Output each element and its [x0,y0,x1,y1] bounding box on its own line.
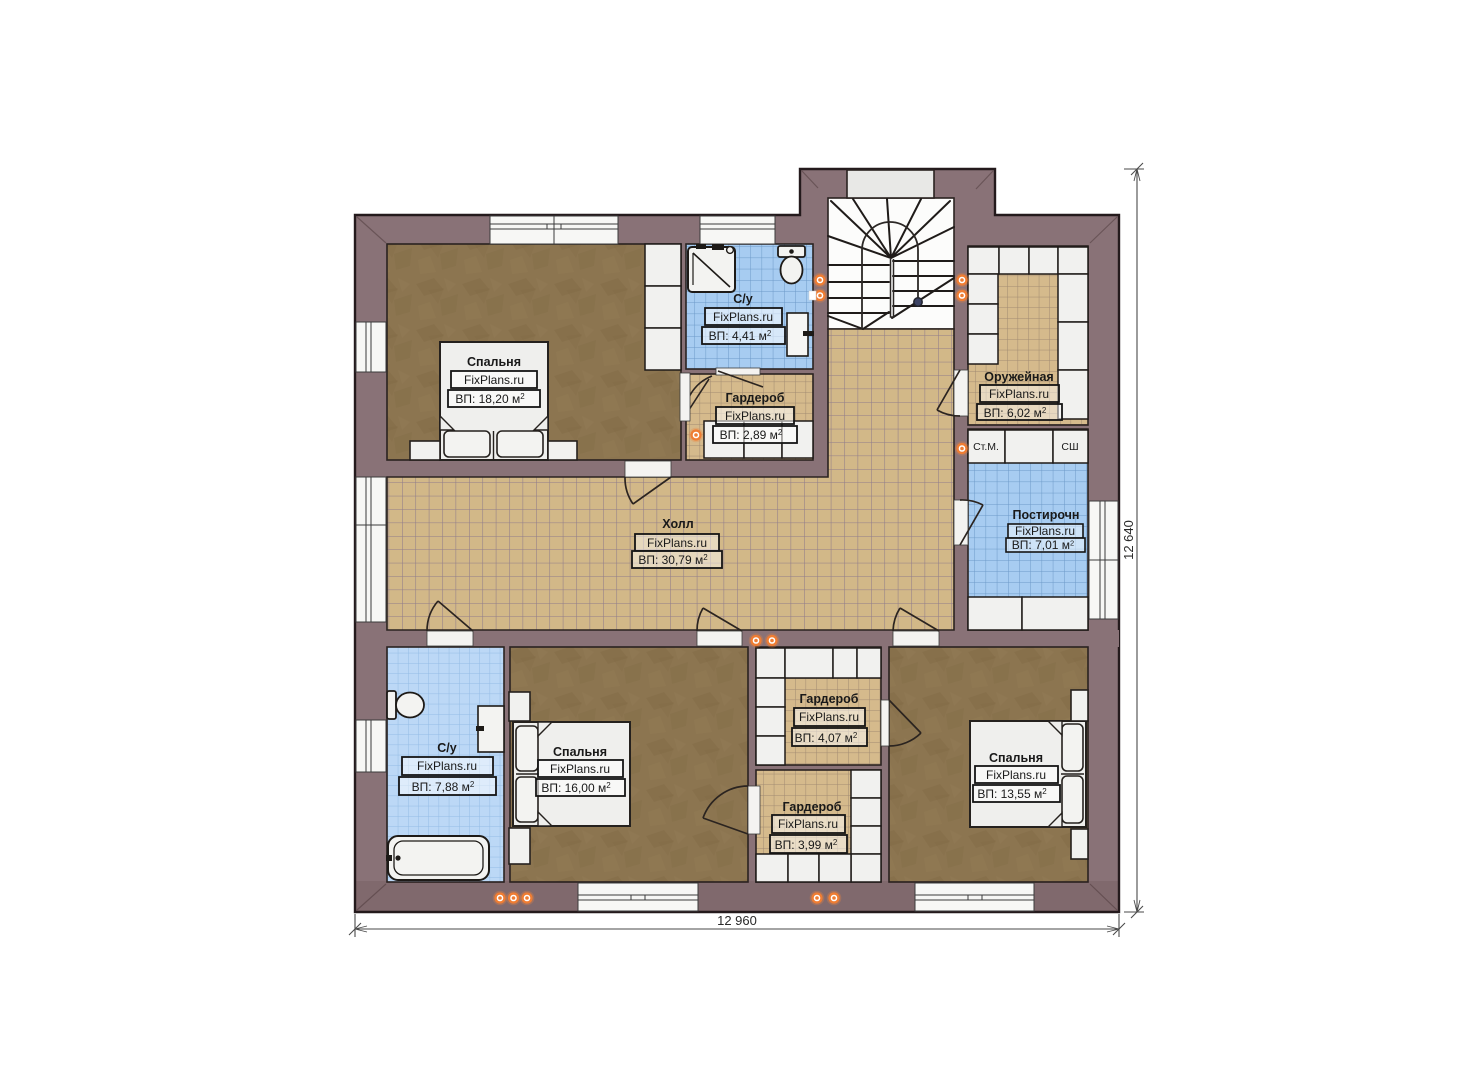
svg-text:FixPlans.ru: FixPlans.ru [550,762,610,776]
svg-text:Ст.М.: Ст.М. [973,441,999,453]
svg-text:ВП: 4,07 м2: ВП: 4,07 м2 [795,731,858,745]
svg-text:FixPlans.ru: FixPlans.ru [778,817,838,831]
svg-text:ВП: 18,20 м2: ВП: 18,20 м2 [455,392,525,406]
svg-text:FixPlans.ru: FixPlans.ru [713,310,773,324]
svg-text:FixPlans.ru: FixPlans.ru [989,387,1049,401]
svg-text:FixPlans.ru: FixPlans.ru [986,768,1046,782]
svg-text:ВП: 13,55 м2: ВП: 13,55 м2 [977,787,1047,801]
svg-text:FixPlans.ru: FixPlans.ru [799,710,859,724]
svg-text:Спальня: Спальня [989,751,1043,765]
svg-text:Гардероб: Гардероб [782,800,841,814]
svg-text:Спальня: Спальня [553,745,607,759]
svg-text:Оружейная: Оружейная [984,370,1053,384]
svg-text:ВП: 3,99 м2: ВП: 3,99 м2 [775,838,838,852]
svg-text:Гардероб: Гардероб [799,692,858,706]
svg-text:FixPlans.ru: FixPlans.ru [725,409,785,423]
svg-text:ВП: 30,79 м2: ВП: 30,79 м2 [638,553,708,567]
svg-text:СШ: СШ [1061,441,1078,453]
svg-text:С/у: С/у [437,741,457,755]
svg-text:С/у: С/у [733,292,753,306]
svg-text:Холл: Холл [662,517,693,531]
svg-text:FixPlans.ru: FixPlans.ru [1015,524,1075,538]
svg-text:Постирочн: Постирочн [1013,508,1080,522]
svg-text:FixPlans.ru: FixPlans.ru [417,759,477,773]
svg-text:ВП: 4,41 м2: ВП: 4,41 м2 [709,329,772,343]
svg-text:12 960: 12 960 [717,913,757,928]
svg-text:ВП: 7,88 м2: ВП: 7,88 м2 [412,780,475,794]
svg-text:ВП: 2,89 м2: ВП: 2,89 м2 [720,428,783,442]
svg-text:ВП: 6,02 м2: ВП: 6,02 м2 [984,406,1047,420]
svg-text:Гардероб: Гардероб [725,391,784,405]
svg-text:FixPlans.ru: FixPlans.ru [464,373,524,387]
svg-text:Спальня: Спальня [467,355,521,369]
svg-text:ВП: 7,01 м2: ВП: 7,01 м2 [1012,538,1074,552]
svg-text:ВП: 16,00 м2: ВП: 16,00 м2 [541,781,611,795]
svg-text:FixPlans.ru: FixPlans.ru [647,536,707,550]
svg-text:12 640: 12 640 [1121,520,1136,560]
